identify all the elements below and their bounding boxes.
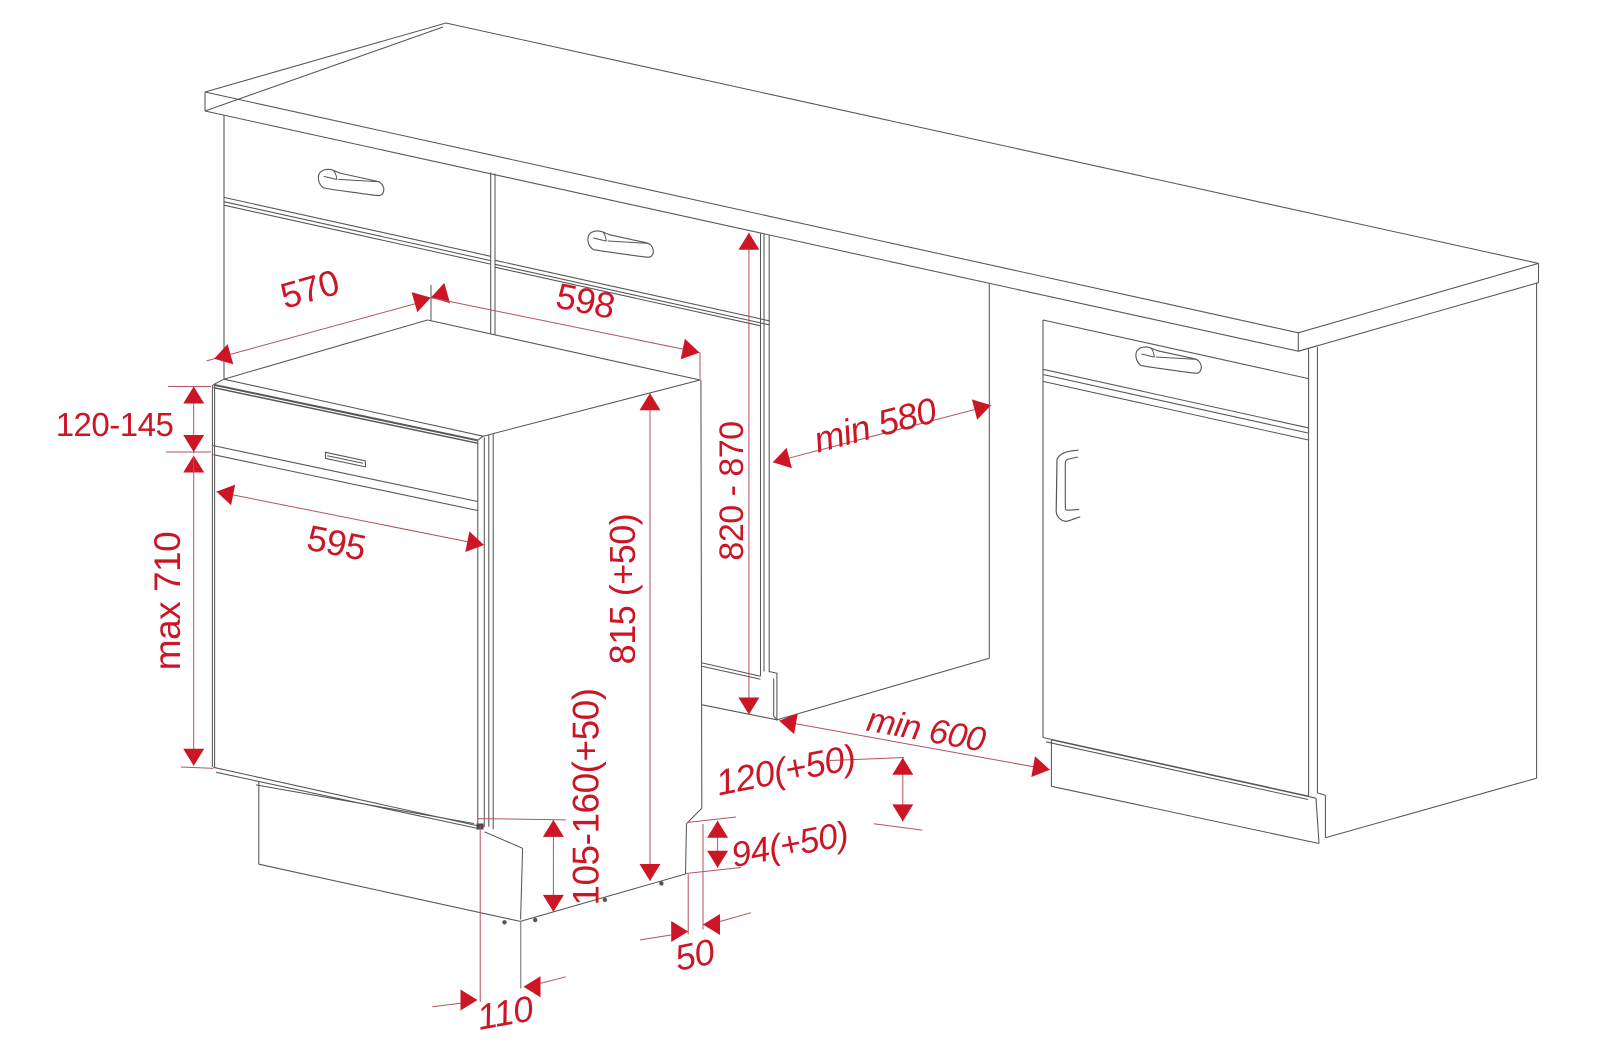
svg-text:820 - 870: 820 - 870 xyxy=(713,421,751,560)
svg-text:105-160(+50): 105-160(+50) xyxy=(566,688,607,905)
svg-text:max 710: max 710 xyxy=(147,532,188,670)
svg-text:815 (+50): 815 (+50) xyxy=(602,514,643,665)
svg-text:120-145: 120-145 xyxy=(56,406,174,443)
